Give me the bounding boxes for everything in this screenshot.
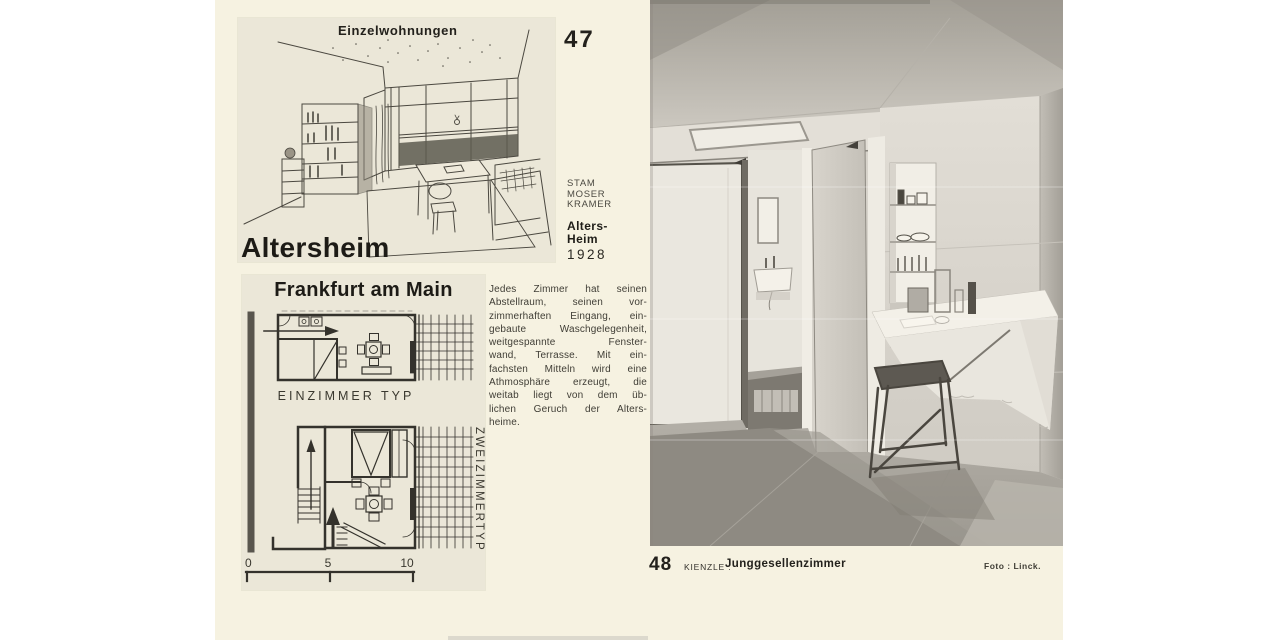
plan-one-label: EINZIMMER TYP [278, 389, 415, 403]
photo-credit: Foto : Linck. [984, 561, 1041, 571]
sketch-heading: Einzelwohnungen [338, 23, 458, 38]
mirror [758, 198, 778, 243]
book-page-scan: Einzelwohnungen Altersheim 47 STAM MOSER… [0, 0, 1280, 640]
page-edge-artifact [448, 636, 648, 640]
open-door [812, 140, 868, 470]
scale-mark-5: 5 [325, 556, 332, 570]
work-year: 1928 [567, 247, 607, 262]
scale-mark-0: 0 [245, 556, 252, 570]
description-text: Jedes Zimmer hat seinen Abstellraum, sei… [489, 283, 647, 429]
plan-two-label: ZWEIZIMMERTYP [473, 427, 485, 552]
scale-mark-10: 10 [400, 556, 414, 570]
frankfurt-heading: Frankfurt am Main [242, 279, 485, 302]
floor-plan-panel: Frankfurt am Main [242, 275, 485, 590]
figure-number-48: 48 [649, 554, 672, 576]
architect-credits: STAM MOSER KRAMER [567, 179, 612, 211]
work-name: Alters- Heim [567, 220, 608, 245]
bath-mat [754, 390, 798, 412]
interior-perspective-drawing [238, 18, 555, 262]
ceiling-speckle [332, 39, 501, 67]
sketch-title: Altersheim [241, 232, 390, 264]
sketch-panel: Einzelwohnungen Altersheim [238, 18, 555, 262]
shelf-niche [890, 163, 936, 303]
photograph-junggesellenzimmer [650, 0, 1063, 546]
figure-number-47: 47 [564, 26, 595, 54]
wash-basin [754, 268, 792, 292]
floor-plans-drawing: EINZIMMER TYP ZWEIZIMMERTYP 0 5 10 [242, 275, 485, 590]
caption-title: Junggesellenzimmer [725, 558, 846, 570]
